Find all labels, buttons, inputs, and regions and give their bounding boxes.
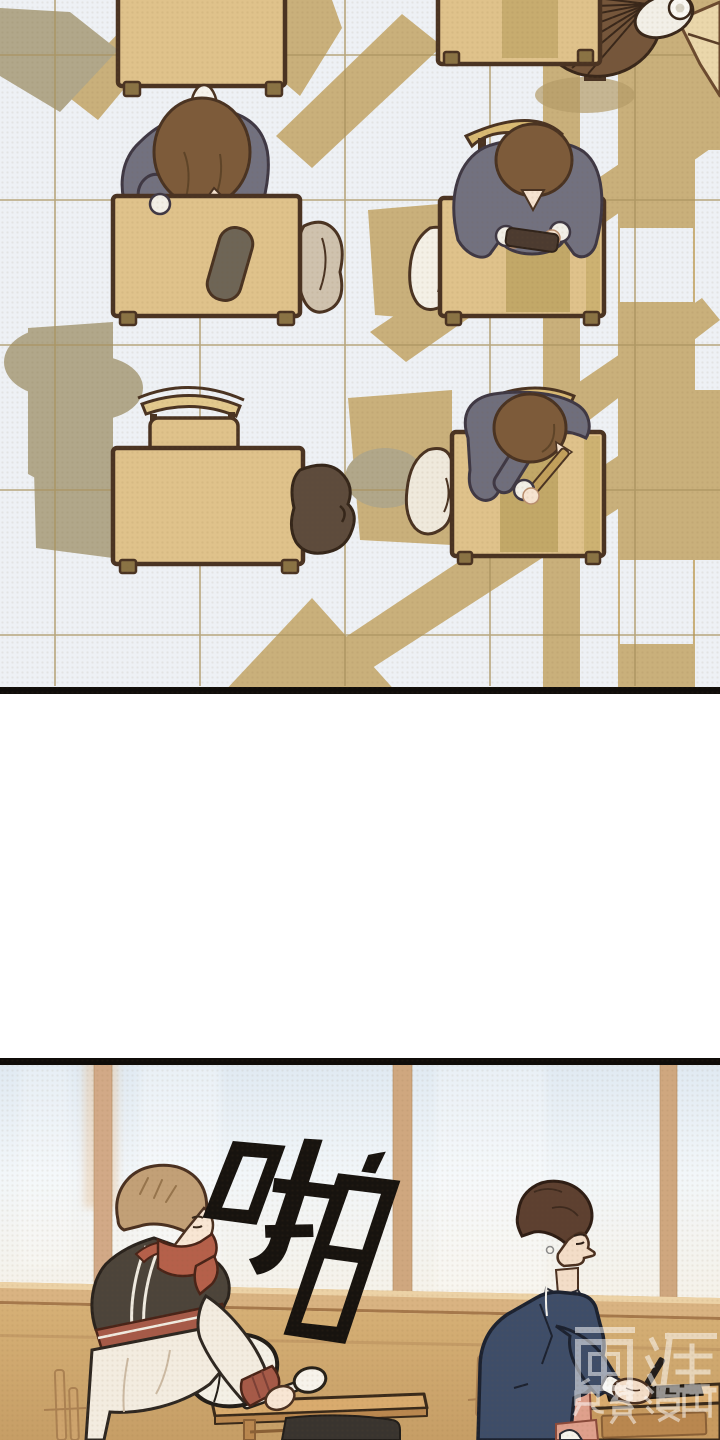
desk <box>113 448 303 564</box>
webtoon-page: 啪 画涯 免费漫画 <box>0 0 720 1440</box>
under-desk-dark <box>282 1415 400 1440</box>
panel-border <box>0 1058 720 1065</box>
hair <box>154 98 250 206</box>
panel-classroom-overhead <box>0 0 720 694</box>
panel-border <box>0 687 720 694</box>
desk-top-right <box>438 0 600 65</box>
overhead-scene <box>0 0 720 694</box>
earbud <box>547 1247 554 1254</box>
panel-classroom-windows <box>0 1058 720 1440</box>
window-scene <box>0 1058 720 1440</box>
desk <box>113 196 300 316</box>
neck-skin <box>556 1268 578 1294</box>
backpack <box>291 465 354 553</box>
bag-beige <box>299 222 343 312</box>
hair <box>496 124 572 196</box>
cuff <box>150 194 170 214</box>
